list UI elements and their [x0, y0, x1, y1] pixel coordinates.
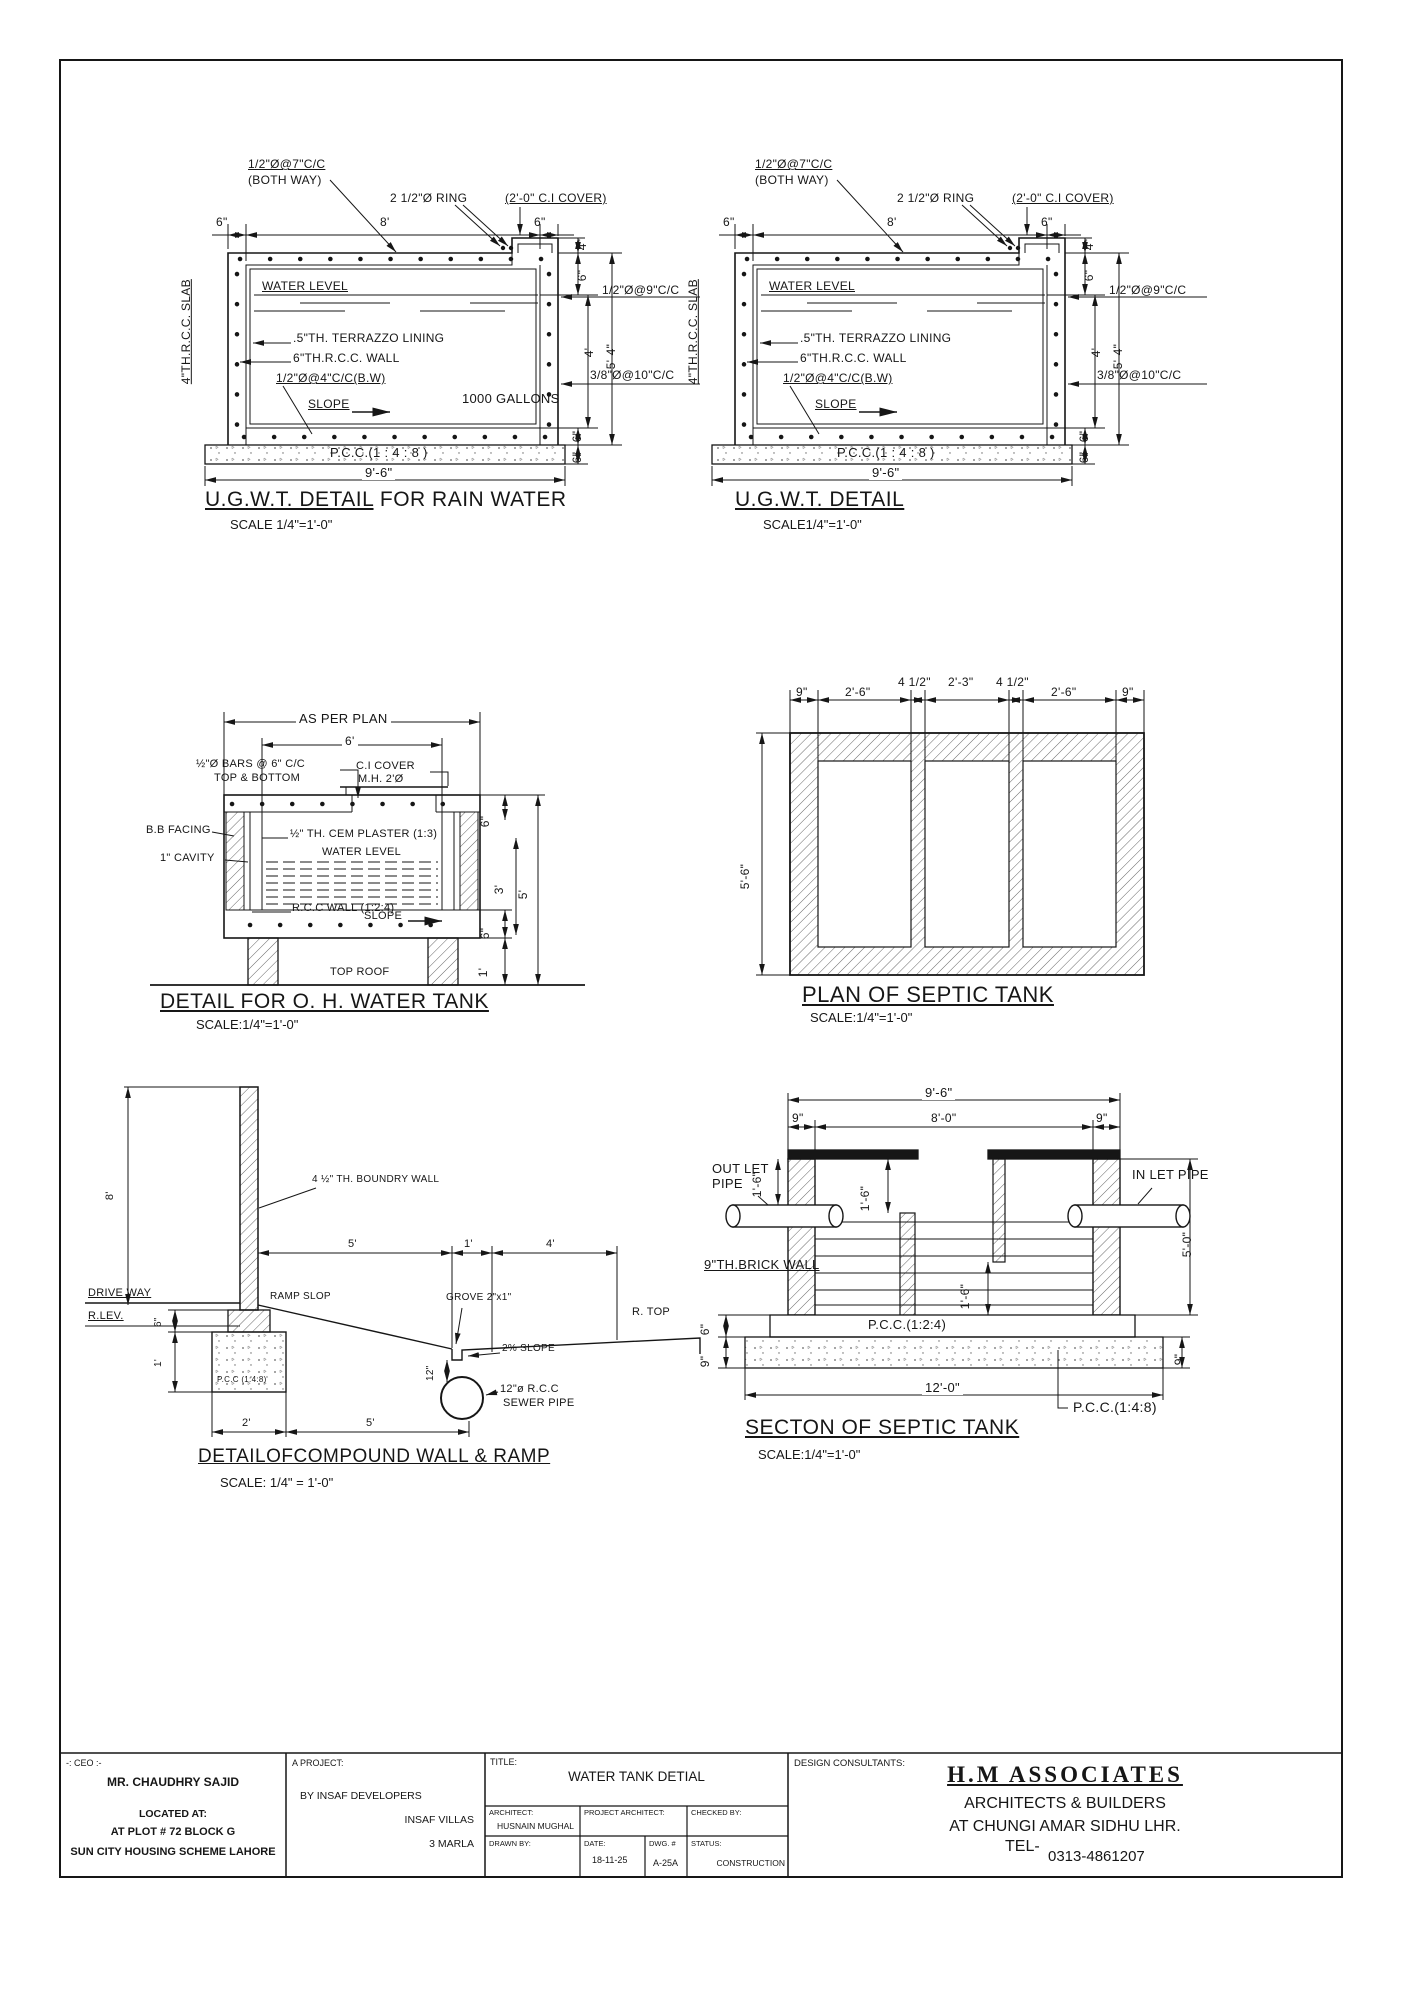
ugwt1-side-bars-label: 1/2"Ø@9"C/C — [602, 284, 679, 297]
ugwt1-dim-r6: 6" — [576, 270, 589, 282]
tb-status: CONSTRUCTION — [687, 1858, 785, 1868]
tb-architect-label: ARCHITECT: — [489, 1808, 533, 1817]
tb-firm-name: H.M ASSOCIATES — [788, 1762, 1342, 1788]
ugwt1-dim-b6b: 6" — [571, 452, 584, 464]
cw-dim-12: 12" — [425, 1365, 436, 1381]
ugwt1-bottom-bars-label: 3/8"Ø@10"C/C — [590, 369, 674, 382]
oh-bars-label: ½"Ø BARS @ 6" C/C — [196, 758, 305, 770]
oh-bars-label-2: TOP & BOTTOM — [214, 772, 300, 784]
cw-drive-way-label: DRIVE WAY — [88, 1287, 151, 1299]
sec-dim-r50: 5'-0" — [1181, 1232, 1194, 1257]
sec-dim-120: 12'-0" — [922, 1381, 963, 1395]
ugwt2-dim-6l: 6" — [723, 216, 735, 229]
cw-scale: SCALE: 1/4" = 1'-0" — [220, 1475, 333, 1490]
ugwt-tank-linework-2 — [712, 180, 1207, 486]
ugwt-tank-linework — [205, 180, 700, 486]
ugwt1-slab-label: 4"TH.R.C.C. SLAB — [180, 279, 193, 384]
oh-dim-r1: 1' — [477, 968, 490, 978]
tb-date-label: DATE: — [584, 1839, 606, 1848]
ugwt2-dim-6r: 6" — [1041, 216, 1053, 229]
tb-checked-label: CHECKED BY: — [691, 1808, 741, 1817]
plan-scale: SCALE:1/4"=1'-0" — [810, 1010, 912, 1025]
ugwt1-title: U.G.W.T. DETAIL FOR RAIN WATER — [205, 488, 567, 512]
cw-dim-b2: 2' — [242, 1417, 251, 1429]
tb-scheme: SUN CITY HOUSING SCHEME LAHORE — [60, 1846, 286, 1858]
sec-dim-r6: 6" — [699, 1324, 712, 1336]
oh-dim-6ft: 6' — [342, 735, 358, 748]
ugwt1-dim-b6a: 6" — [571, 431, 584, 443]
ugwt2-slab-label: 4"TH.R.C.C. SLAB — [687, 279, 700, 384]
tb-date: 18-11-25 — [592, 1855, 627, 1865]
tb-located-label: LOCATED AT: — [60, 1808, 286, 1820]
tb-ceo-label: -: CEO :- — [66, 1758, 102, 1768]
sec-dim-r16b: 1'-6" — [859, 1186, 872, 1211]
sec-dim-9a: 9" — [792, 1112, 804, 1125]
cw-sewer-label-2: SEWER PIPE — [503, 1397, 574, 1409]
plan-title: PLAN OF SEPTIC TANK — [802, 982, 1054, 1008]
tb-marla: 3 MARLA — [286, 1838, 474, 1850]
cw-title: DETAILOFCOMPOUND WALL & RAMP — [198, 1446, 550, 1468]
tb-drawn-label: DRAWN BY: — [489, 1839, 531, 1848]
sec-dim-9b: 9" — [1096, 1112, 1108, 1125]
ugwt2-slope-label: SLOPE — [815, 398, 857, 411]
septic-plan-linework — [756, 690, 1144, 975]
oh-scale: SCALE:1/4"=1'-0" — [196, 1017, 298, 1032]
tb-ceo-name: MR. CHAUDHRY SAJID — [60, 1775, 286, 1789]
ugwt2-terrazzo-label: .5"TH. TERRAZZO LINING — [800, 332, 951, 345]
tb-firm-line3: AT CHUNGI AMAR SIDHU LHR. — [788, 1818, 1342, 1836]
sec-title: SECTON OF SEPTIC TANK — [745, 1416, 1019, 1440]
ugwt1-bw-bars-label: 1/2"Ø@4"C/C(B.W) — [276, 372, 386, 385]
oh-as-per-plan: AS PER PLAN — [296, 712, 391, 726]
ugwt2-both-way-label: (BOTH WAY) — [755, 174, 829, 187]
tb-project-label: A PROJECT: — [292, 1758, 344, 1768]
sec-pcc124-label: P.C.C.(1:2:4) — [868, 1318, 946, 1332]
oh-plaster-label: ½" TH. CEM PLASTER (1:3) — [290, 828, 437, 840]
tb-project-architect-label: PROJECT ARCHITECT: — [584, 1808, 665, 1817]
plan-dim-56: 5'-6" — [739, 864, 752, 889]
oh-dim-r6a: 6" — [479, 816, 492, 828]
sec-dim-80: 8'-0" — [928, 1112, 959, 1125]
ugwt1-gallons-label: 1000 GALLONS — [462, 392, 560, 406]
ugwt2-dim-r6: 6" — [1083, 270, 1096, 282]
cw-dim-r1: 1' — [153, 1359, 164, 1367]
tb-dwg: A-25A — [653, 1858, 678, 1868]
ugwt2-ring-label: 2 1/2"Ø RING — [897, 192, 974, 205]
ugwt2-side-bars-label: 1/2"Ø@9"C/C — [1109, 284, 1186, 297]
ugwt2-dim-b6a: 6" — [1078, 431, 1091, 443]
tb-dwg-label: DWG. # — [649, 1839, 676, 1848]
cw-dim-b5: 5' — [366, 1417, 375, 1429]
ugwt2-top-bars-label: 1/2"Ø@7"C/C — [755, 158, 832, 171]
oh-dim-r6b: 6" — [479, 928, 492, 940]
tb-drawing-title: WATER TANK DETIAL — [485, 1769, 788, 1784]
cw-rlev-label: R.LEV. — [88, 1310, 124, 1322]
sec-brick-wall-label: 9"TH.BRICK WALL — [704, 1258, 820, 1272]
tb-architect: HUSNAIN MUGHAL — [497, 1821, 574, 1831]
cw-dim-4: 4' — [546, 1238, 555, 1250]
tb-villas: INSAF VILLAS — [286, 1814, 474, 1826]
ugwt2-water-level: WATER LEVEL — [769, 280, 855, 293]
plan-dim-23: 2'-3" — [948, 676, 973, 689]
cw-dim-r6: 6" — [153, 1317, 164, 1327]
oh-top-roof-label: TOP ROOF — [330, 966, 389, 978]
ugwt1-scale: SCALE 1/4"=1'-0" — [230, 517, 332, 532]
sec-inlet-label: IN LET PIPE — [1132, 1168, 1209, 1182]
ugwt1-top-bars-label: 1/2"Ø@7"C/C — [248, 158, 325, 171]
ugwt2-dim-8: 8' — [887, 216, 897, 229]
cw-slope2-label: 2% SLOPE — [502, 1343, 555, 1354]
ugwt1-dim-h4: 4' — [583, 348, 596, 358]
tb-tel: 0313-4861207 — [1048, 1848, 1145, 1865]
tb-title-label: TITLE: — [490, 1757, 517, 1767]
oh-water-level: WATER LEVEL — [322, 846, 401, 858]
tb-firm-line2: ARCHITECTS & BUILDERS — [788, 1795, 1342, 1813]
cw-sewer-label: 12"ø R.C.C — [500, 1383, 559, 1395]
ugwt1-dim-6l: 6" — [216, 216, 228, 229]
ugwt1-dim-h54: 5'-4" — [605, 344, 618, 369]
ugwt1-dim-8: 8' — [380, 216, 390, 229]
sec-pcc148-label: P.C.C.(1:4:8) — [1073, 1400, 1157, 1415]
ugwt2-bw-bars-label: 1/2"Ø@4"C/C(B.W) — [783, 372, 893, 385]
plan-dim-9b: 9" — [1122, 686, 1134, 699]
oh-bb-facing-label: B.B FACING — [146, 824, 211, 836]
oh-slope-label: SLOPE — [364, 910, 402, 922]
sec-dim-96: 9'-6" — [922, 1086, 955, 1100]
ugwt1-dim-r4: 4" — [576, 239, 589, 251]
ugwt2-dim-h4: 4' — [1090, 348, 1103, 358]
ugwt2-dim-h54: 5'-4" — [1112, 344, 1125, 369]
ugwt1-terrazzo-label: .5"TH. TERRAZZO LINING — [293, 332, 444, 345]
sec-scale: SCALE:1/4"=1'-0" — [758, 1447, 860, 1462]
plan-dim-26a: 2'-6" — [845, 686, 870, 699]
tb-tel-label: TEL- — [1005, 1838, 1040, 1856]
ugwt1-ring-label: 2 1/2"Ø RING — [390, 192, 467, 205]
sec-dim-r16a: 1'-6" — [751, 1172, 764, 1197]
oh-dim-r3: 3' — [493, 885, 506, 895]
cw-dim-8: 8' — [104, 1191, 116, 1200]
ugwt2-wall-label: 6"TH.R.C.C. WALL — [800, 352, 907, 365]
septic-section-linework — [718, 1093, 1198, 1408]
ugwt1-dim-6r: 6" — [534, 216, 546, 229]
plan-dim-26b: 2'-6" — [1051, 686, 1076, 699]
sec-dim-r9b: 9" — [1173, 1354, 1186, 1366]
ugwt1-water-level: WATER LEVEL — [262, 280, 348, 293]
cw-grove-label: GROVE 2"x1" — [446, 1292, 511, 1303]
sec-outlet-label-2: PIPE — [712, 1177, 743, 1191]
ugwt1-pcc-label: P.C.C.(1 : 4 : 8 ) — [330, 446, 428, 460]
ugwt1-dim-96: 9'-6" — [362, 466, 395, 480]
tb-developer: BY INSAF DEVELOPERS — [300, 1790, 422, 1802]
sec-dim-r9a: 9" — [699, 1356, 712, 1368]
oh-ci-cover-label: C.I COVER — [356, 760, 415, 772]
cw-dim-1: 1' — [464, 1238, 473, 1250]
oh-dim-r5: 5' — [517, 890, 530, 900]
sec-dim-r16c: 1'-6" — [959, 1284, 972, 1309]
ugwt2-bottom-bars-label: 3/8"Ø@10"C/C — [1097, 369, 1181, 382]
cw-pcc-label: P.C.C (1:4:8) — [217, 1376, 267, 1385]
ugwt1-wall-label: 6"TH.R.C.C. WALL — [293, 352, 400, 365]
plan-dim-45a: 4 1/2" — [898, 676, 931, 689]
ugwt1-both-way-label: (BOTH WAY) — [248, 174, 322, 187]
tb-status-label: STATUS: — [691, 1839, 722, 1848]
oh-cavity-label: 1" CAVITY — [160, 852, 215, 864]
ugwt2-dim-96: 9'-6" — [869, 466, 902, 480]
plan-dim-9a: 9" — [796, 686, 808, 699]
ugwt2-pcc-label: P.C.C.(1 : 4 : 8 ) — [837, 446, 935, 460]
drawing-sheet: { "ugwt_rain": { "title_main": "U.G.W.T.… — [0, 0, 1414, 2000]
ugwt1-slope-label: SLOPE — [308, 398, 350, 411]
ugwt2-dim-b6b: 6" — [1078, 452, 1091, 464]
oh-title: DETAIL FOR O. H. WATER TANK — [160, 990, 489, 1014]
oh-mh-label: M.H. 2'Ø — [358, 773, 403, 785]
cw-dim-5: 5' — [348, 1238, 357, 1250]
tb-plot: AT PLOT # 72 BLOCK G — [60, 1826, 286, 1838]
ugwt2-scale: SCALE1/4"=1'-0" — [763, 517, 862, 532]
cw-ramp-slop-label: RAMP SLOP — [270, 1291, 331, 1302]
plan-dim-45b: 4 1/2" — [996, 676, 1029, 689]
ugwt2-cover-label: (2'-0" C.I COVER) — [1012, 192, 1114, 205]
ugwt2-title: U.G.W.T. DETAIL — [735, 488, 904, 512]
cw-wall-label: 4 ½" TH. BOUNDRY WALL — [312, 1174, 439, 1185]
ugwt2-dim-r4: 4" — [1083, 239, 1096, 251]
ugwt1-cover-label: (2'-0" C.I COVER) — [505, 192, 607, 205]
cw-rtop-label: R. TOP — [632, 1306, 670, 1318]
compound-wall-linework — [85, 1087, 700, 1437]
